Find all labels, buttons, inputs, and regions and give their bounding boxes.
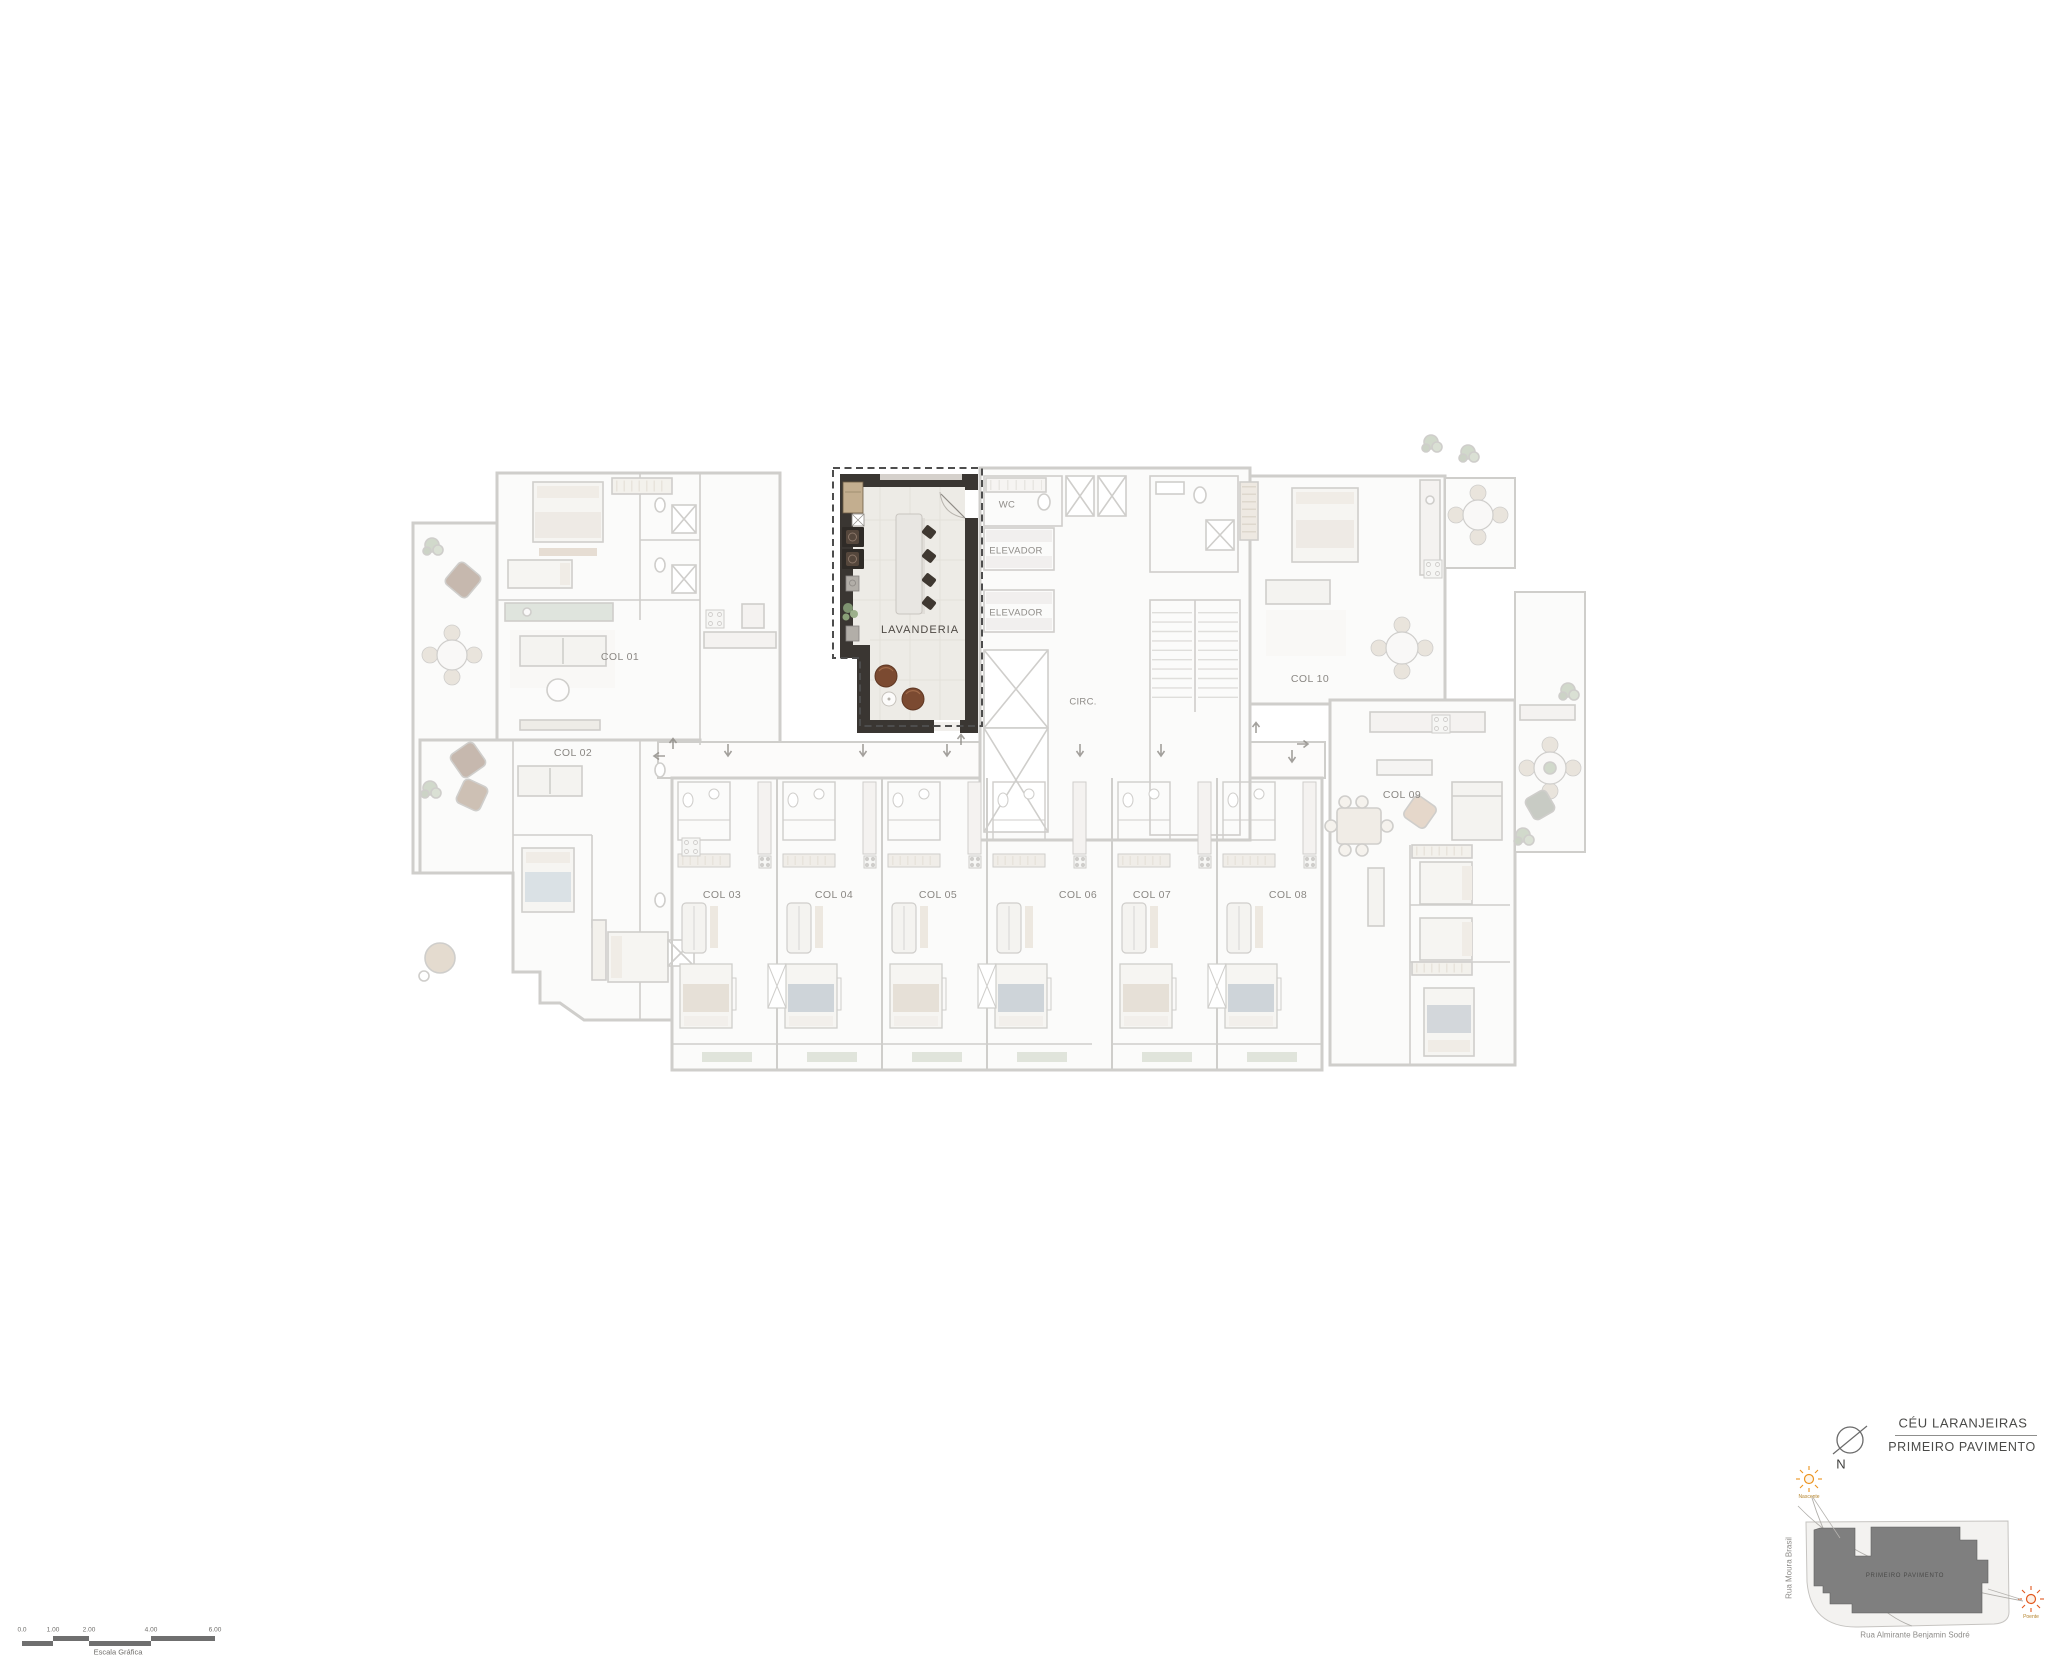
sunrise-label: Nascente xyxy=(1798,1494,1819,1500)
elevator-label-2: ELEVADOR xyxy=(989,608,1042,619)
unit-label[interactable]: COL 06 xyxy=(1059,889,1097,901)
sunset-label: Poente xyxy=(2023,1614,2039,1620)
scale-tick-label: 1.00 xyxy=(47,1627,60,1634)
floor-plan-page: LAVANDERIA WC ELEVADOR ELEVADOR CIRC. CO… xyxy=(0,0,2048,1669)
unit-label[interactable]: COL 02 xyxy=(554,747,592,759)
unit-label[interactable]: COL 10 xyxy=(1291,673,1329,685)
unit-label[interactable]: COL 05 xyxy=(919,889,957,901)
circulation-label: CIRC. xyxy=(1069,697,1096,708)
sunrise-icon xyxy=(1796,1466,1822,1492)
legend-graphics xyxy=(1796,1426,2044,1627)
legend-divider xyxy=(1895,1435,2037,1436)
unit-label[interactable]: COL 03 xyxy=(703,889,741,901)
scale-tick-label: 4.00 xyxy=(145,1627,158,1634)
laundry-highlight-region[interactable] xyxy=(833,468,982,726)
scale-bar xyxy=(22,1636,215,1646)
floor-title: PRIMEIRO PAVIMENTO xyxy=(1888,1440,2036,1454)
unit-label[interactable]: COL 04 xyxy=(815,889,853,901)
compass-north-label: N xyxy=(1836,1457,1845,1472)
unit-label[interactable]: COL 08 xyxy=(1269,889,1307,901)
floor-plan-drawing xyxy=(0,0,2048,1669)
unit-label[interactable]: COL 09 xyxy=(1383,789,1421,801)
scale-tick-label: 0.0 xyxy=(17,1627,26,1634)
unit-label[interactable]: COL 01 xyxy=(601,651,639,663)
street-label-west: Rua Moura Brasil xyxy=(1785,1537,1794,1599)
wc-label: WC xyxy=(999,500,1015,511)
footprint-label: PRIMEIRO PAVIMENTO xyxy=(1866,1573,1944,1579)
scale-tick-label: 2.00 xyxy=(83,1627,96,1634)
unit-label[interactable]: COL 07 xyxy=(1133,889,1171,901)
building-footprint xyxy=(1814,1527,1988,1613)
sunset-icon xyxy=(2018,1586,2044,1612)
elevator-label-1: ELEVADOR xyxy=(989,546,1042,557)
street-label-south: Rua Almirante Benjamin Sodré xyxy=(1860,1631,1969,1640)
scale-tick-label: 6.00 xyxy=(209,1627,222,1634)
project-title: CÉU LARANJEIRAS xyxy=(1899,1416,2028,1431)
scale-caption: Escala Gráfica xyxy=(94,1648,143,1657)
